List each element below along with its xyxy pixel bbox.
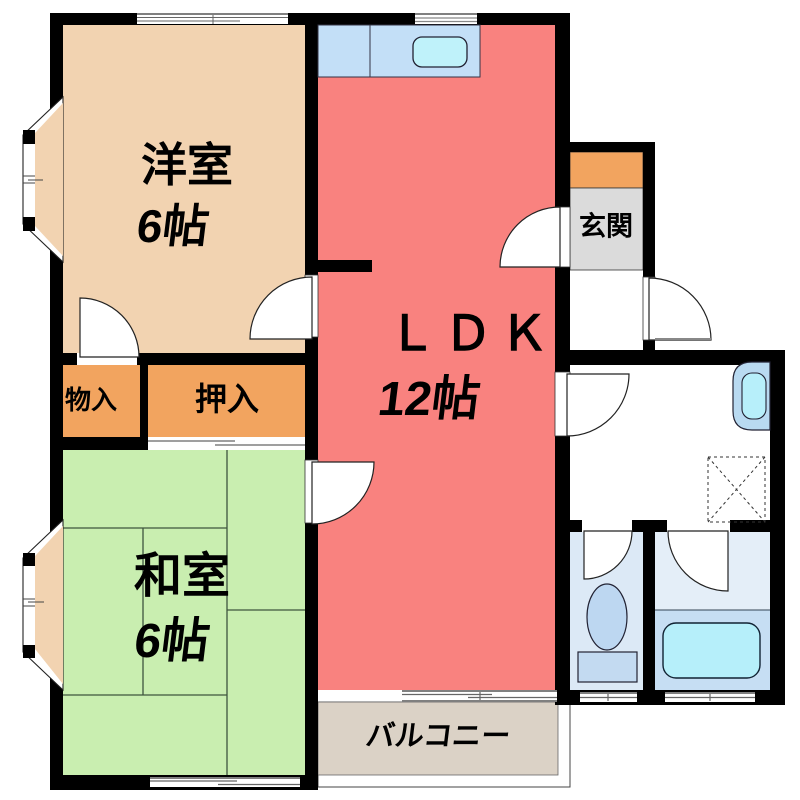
washing-machine-space-icon — [708, 457, 765, 522]
kitchen-counter — [318, 25, 480, 77]
toilet-door-opening — [582, 520, 632, 532]
floor-plan: 洋室 6帖 ＬＤＫ 12帖 和室 6帖 物入 押入 玄関 バルコニー — [0, 0, 800, 800]
japanese-room-floor — [63, 450, 305, 775]
ldk-size: 12帖 — [375, 376, 482, 424]
western-room-window — [137, 13, 288, 25]
storage-label: 物入 — [65, 387, 117, 413]
wall-stub-ldk — [305, 260, 372, 272]
entrance-label: 玄関 — [579, 214, 633, 241]
japanese-room-window — [150, 777, 300, 788]
wall-toilet-bath-divider — [643, 532, 655, 690]
wall-storage-bottom — [50, 437, 150, 450]
shoe-cabinet — [570, 152, 643, 188]
kitchen-window — [415, 13, 477, 25]
washroom-door-swing — [567, 374, 629, 436]
balcony-label: バルコニー — [364, 723, 512, 752]
washbasin-icon — [733, 362, 770, 430]
japanese-room-bay-window — [23, 520, 63, 690]
closet-label: 押入 — [195, 383, 259, 415]
wall-storage-divider — [140, 365, 148, 437]
bath-window — [665, 692, 755, 703]
western-room-bay-window — [23, 97, 63, 262]
bathtub-icon — [663, 623, 760, 678]
bath-door-opening — [667, 520, 730, 532]
japanese-room-label: 和室 — [134, 553, 230, 601]
wall-center-vertical — [305, 13, 318, 790]
japanese-room-size: 6帖 — [132, 618, 213, 666]
ldk-balcony-window — [402, 690, 557, 702]
ldk-label: ＬＤＫ — [388, 311, 556, 359]
western-room-label: 洋室 — [141, 142, 233, 188]
wall-ldk-right — [555, 13, 570, 702]
western-room-size: 6帖 — [134, 203, 211, 249]
front-door-swing — [649, 278, 711, 340]
closet-sliding-door — [148, 437, 305, 450]
kitchen-sink-icon — [413, 37, 467, 67]
toilet-window — [580, 692, 637, 703]
wall-entrance-top — [565, 142, 655, 152]
